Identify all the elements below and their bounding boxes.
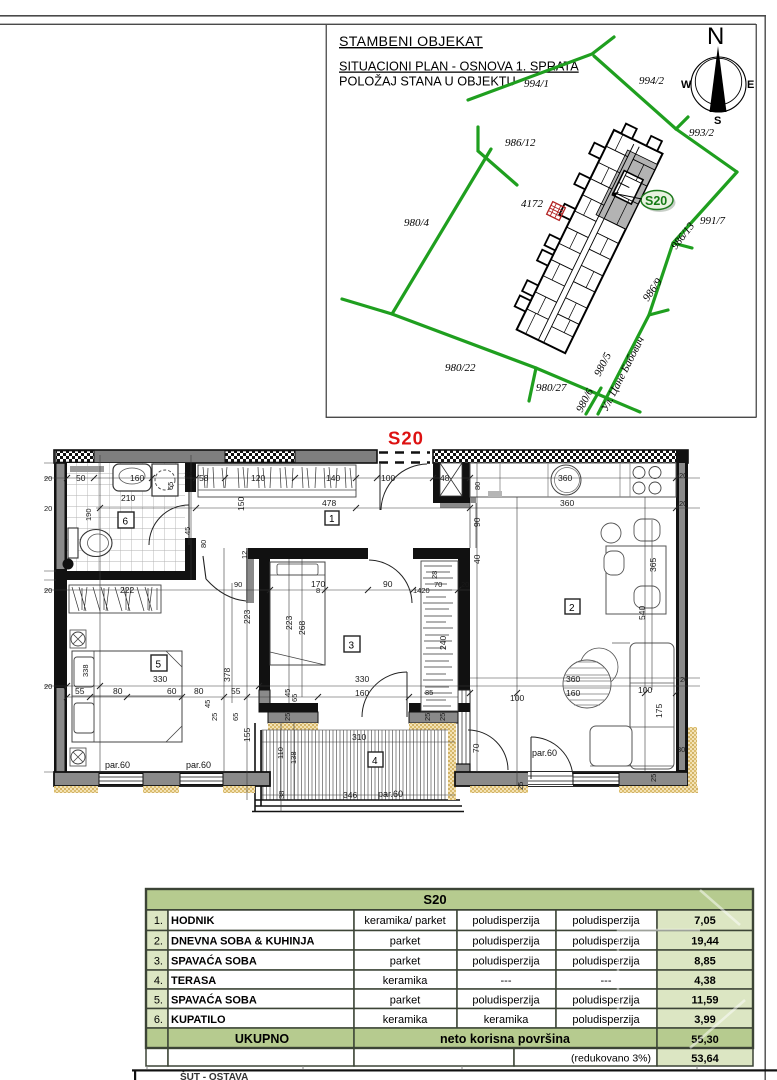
svg-text:20: 20 [44,504,52,513]
svg-text:6.: 6. [154,1014,163,1026]
svg-text:986/12: 986/12 [505,137,536,149]
svg-text:UKUPNO: UKUPNO [235,1032,289,1046]
svg-text:3: 3 [349,641,355,652]
svg-text:6: 6 [123,517,129,528]
svg-text:58: 58 [199,473,209,483]
svg-text:20: 20 [44,474,52,483]
svg-text:160: 160 [566,688,580,698]
svg-text:20: 20 [44,682,52,691]
svg-text:1: 1 [329,514,335,525]
svg-text:keramika: keramika [484,1014,530,1026]
svg-text:KUPATILO: KUPATILO [171,1014,226,1026]
svg-text:80: 80 [473,482,482,490]
svg-text:8,85: 8,85 [694,956,715,968]
svg-text:90: 90 [472,517,482,527]
svg-text:5.: 5. [154,995,163,1007]
svg-text:ŠUT - OSTAVA: ŠUT - OSTAVA [180,1070,248,1080]
svg-text:65: 65 [231,713,240,721]
svg-text:19,44: 19,44 [691,936,719,948]
svg-text:20: 20 [680,675,688,684]
svg-text:85: 85 [425,688,433,697]
svg-text:80: 80 [194,686,204,696]
svg-text:150: 150 [236,497,246,511]
svg-text:80: 80 [199,540,208,548]
svg-text:30: 30 [677,745,685,754]
svg-text:2: 2 [569,603,575,614]
svg-text:240: 240 [438,636,448,650]
svg-text:223: 223 [242,610,252,624]
svg-text:40: 40 [472,554,482,564]
svg-text:5: 5 [156,660,162,671]
svg-text:268: 268 [297,621,307,635]
svg-text:210: 210 [121,493,135,503]
svg-text:20: 20 [679,471,687,480]
svg-text:8: 8 [316,586,320,595]
svg-text:100: 100 [381,473,395,483]
svg-text:E: E [747,79,754,91]
svg-text:138: 138 [289,751,298,764]
svg-text:poludisperzija: poludisperzija [472,956,540,968]
svg-text:70: 70 [471,743,481,753]
svg-text:140: 140 [326,473,340,483]
svg-text:2.: 2. [154,936,163,948]
svg-text:365: 365 [648,558,658,572]
svg-text:25: 25 [438,713,447,721]
svg-text:keramika/ parket: keramika/ parket [364,915,445,927]
svg-text:222: 222 [120,585,134,595]
svg-text:parket: parket [390,936,421,948]
svg-text:neto korisna površina: neto korisna površina [440,1032,571,1046]
svg-text:3.: 3. [154,956,163,968]
svg-text:100: 100 [638,685,652,695]
svg-text:20: 20 [44,586,52,595]
svg-text:TERASA: TERASA [171,975,216,987]
svg-text:20: 20 [679,499,687,508]
svg-text:20: 20 [461,580,469,589]
svg-text:991/7: 991/7 [700,215,726,227]
svg-text:100: 100 [510,693,524,703]
svg-text:S20: S20 [645,194,667,208]
svg-text:poludisperzija: poludisperzija [572,936,640,948]
svg-text:55: 55 [75,686,85,696]
svg-text:4.: 4. [154,975,163,987]
svg-text:338: 338 [81,664,90,677]
svg-text:478: 478 [322,498,336,508]
svg-text:par.60: par.60 [378,789,403,799]
svg-text:160: 160 [130,473,144,483]
svg-text:(redukovano 3%): (redukovano 3%) [571,1053,651,1065]
svg-text:980/22: 980/22 [445,362,476,374]
svg-text:360: 360 [558,473,572,483]
svg-text:80: 80 [113,686,123,696]
svg-text:poludisperzija: poludisperzija [572,995,640,1007]
svg-text:25: 25 [516,782,525,790]
svg-text:poludisperzija: poludisperzija [472,995,540,1007]
svg-text:S20: S20 [388,428,424,449]
svg-text:poludisperzija: poludisperzija [472,915,540,927]
svg-text:28: 28 [430,571,439,579]
svg-text:4: 4 [372,756,378,767]
svg-text:993/2: 993/2 [689,127,715,139]
svg-text:360: 360 [566,674,580,684]
svg-text:1420: 1420 [413,586,430,595]
svg-text:SPAVAĆA SOBA: SPAVAĆA SOBA [171,955,257,968]
svg-text:994/1: 994/1 [524,78,549,90]
svg-text:360: 360 [560,498,574,508]
svg-text:175: 175 [654,704,664,718]
svg-text:55: 55 [231,686,241,696]
svg-text:994/2: 994/2 [639,75,665,87]
svg-text:330: 330 [153,674,167,684]
svg-text:parket: parket [390,995,421,1007]
svg-text:25: 25 [283,713,292,721]
svg-text:12: 12 [240,551,249,559]
svg-text:S20: S20 [423,892,446,907]
svg-text:223: 223 [284,616,294,630]
svg-text:par.60: par.60 [105,760,130,770]
svg-text:25: 25 [649,774,658,782]
svg-text:par.60: par.60 [532,748,557,758]
svg-text:50: 50 [76,473,86,483]
svg-text:70: 70 [434,580,442,589]
svg-text:45: 45 [203,700,212,708]
svg-text:90: 90 [383,579,393,589]
svg-text:38: 38 [277,791,286,799]
svg-text:11,59: 11,59 [692,995,719,1007]
svg-text:540: 540 [637,606,647,620]
svg-text:65: 65 [290,694,299,702]
svg-text:poludisperzija: poludisperzija [572,1014,640,1026]
svg-text:980/27: 980/27 [536,382,567,394]
svg-text:4,38: 4,38 [694,975,715,987]
svg-text:25: 25 [423,713,432,721]
svg-text:S: S [714,115,721,127]
svg-text:HODNIK: HODNIK [171,915,214,927]
svg-text:1.: 1. [154,915,163,927]
svg-text:65: 65 [166,482,175,490]
svg-text:DNEVNA SOBA & KUHINJA: DNEVNA SOBA & KUHINJA [171,936,314,948]
svg-text:3,99: 3,99 [694,1014,715,1026]
svg-text:keramika: keramika [383,1014,429,1026]
svg-text:110: 110 [276,747,285,759]
svg-text:346: 346 [343,790,357,800]
svg-text:53,64: 53,64 [691,1053,719,1065]
svg-text:poludisperzija: poludisperzija [572,915,640,927]
svg-text:48: 48 [440,473,450,483]
svg-text:160: 160 [355,688,369,698]
svg-text:STAMBENI OBJEKAT: STAMBENI OBJEKAT [339,34,483,50]
svg-text:SPAVAĆA SOBA: SPAVAĆA SOBA [171,994,257,1007]
svg-text:980/4: 980/4 [404,217,430,229]
svg-text:155: 155 [242,728,252,742]
svg-text:330: 330 [355,674,369,684]
svg-text:25: 25 [210,713,219,721]
svg-text:378: 378 [222,668,232,682]
svg-text:par.60: par.60 [186,760,211,770]
svg-text:parket: parket [390,956,421,968]
svg-text:90: 90 [234,580,242,589]
svg-text:120: 120 [251,473,265,483]
svg-text:12: 12 [184,470,192,479]
svg-text:N: N [707,23,724,50]
svg-text:poludisperzija: poludisperzija [472,936,540,948]
svg-text:4172: 4172 [521,198,544,210]
svg-text:POLOŽAJ STANA U OBJEKTU: POLOŽAJ STANA U OBJEKTU [339,74,516,89]
svg-text:45: 45 [183,527,192,535]
svg-text:keramika: keramika [383,975,429,987]
svg-text:W: W [681,79,692,91]
svg-text:---: --- [501,975,512,987]
svg-text:60: 60 [167,686,177,696]
svg-text:---: --- [601,975,612,987]
svg-text:310: 310 [352,732,366,742]
svg-text:190: 190 [84,508,93,521]
svg-text:7,05: 7,05 [694,915,715,927]
svg-text:poludisperzija: poludisperzija [572,956,640,968]
